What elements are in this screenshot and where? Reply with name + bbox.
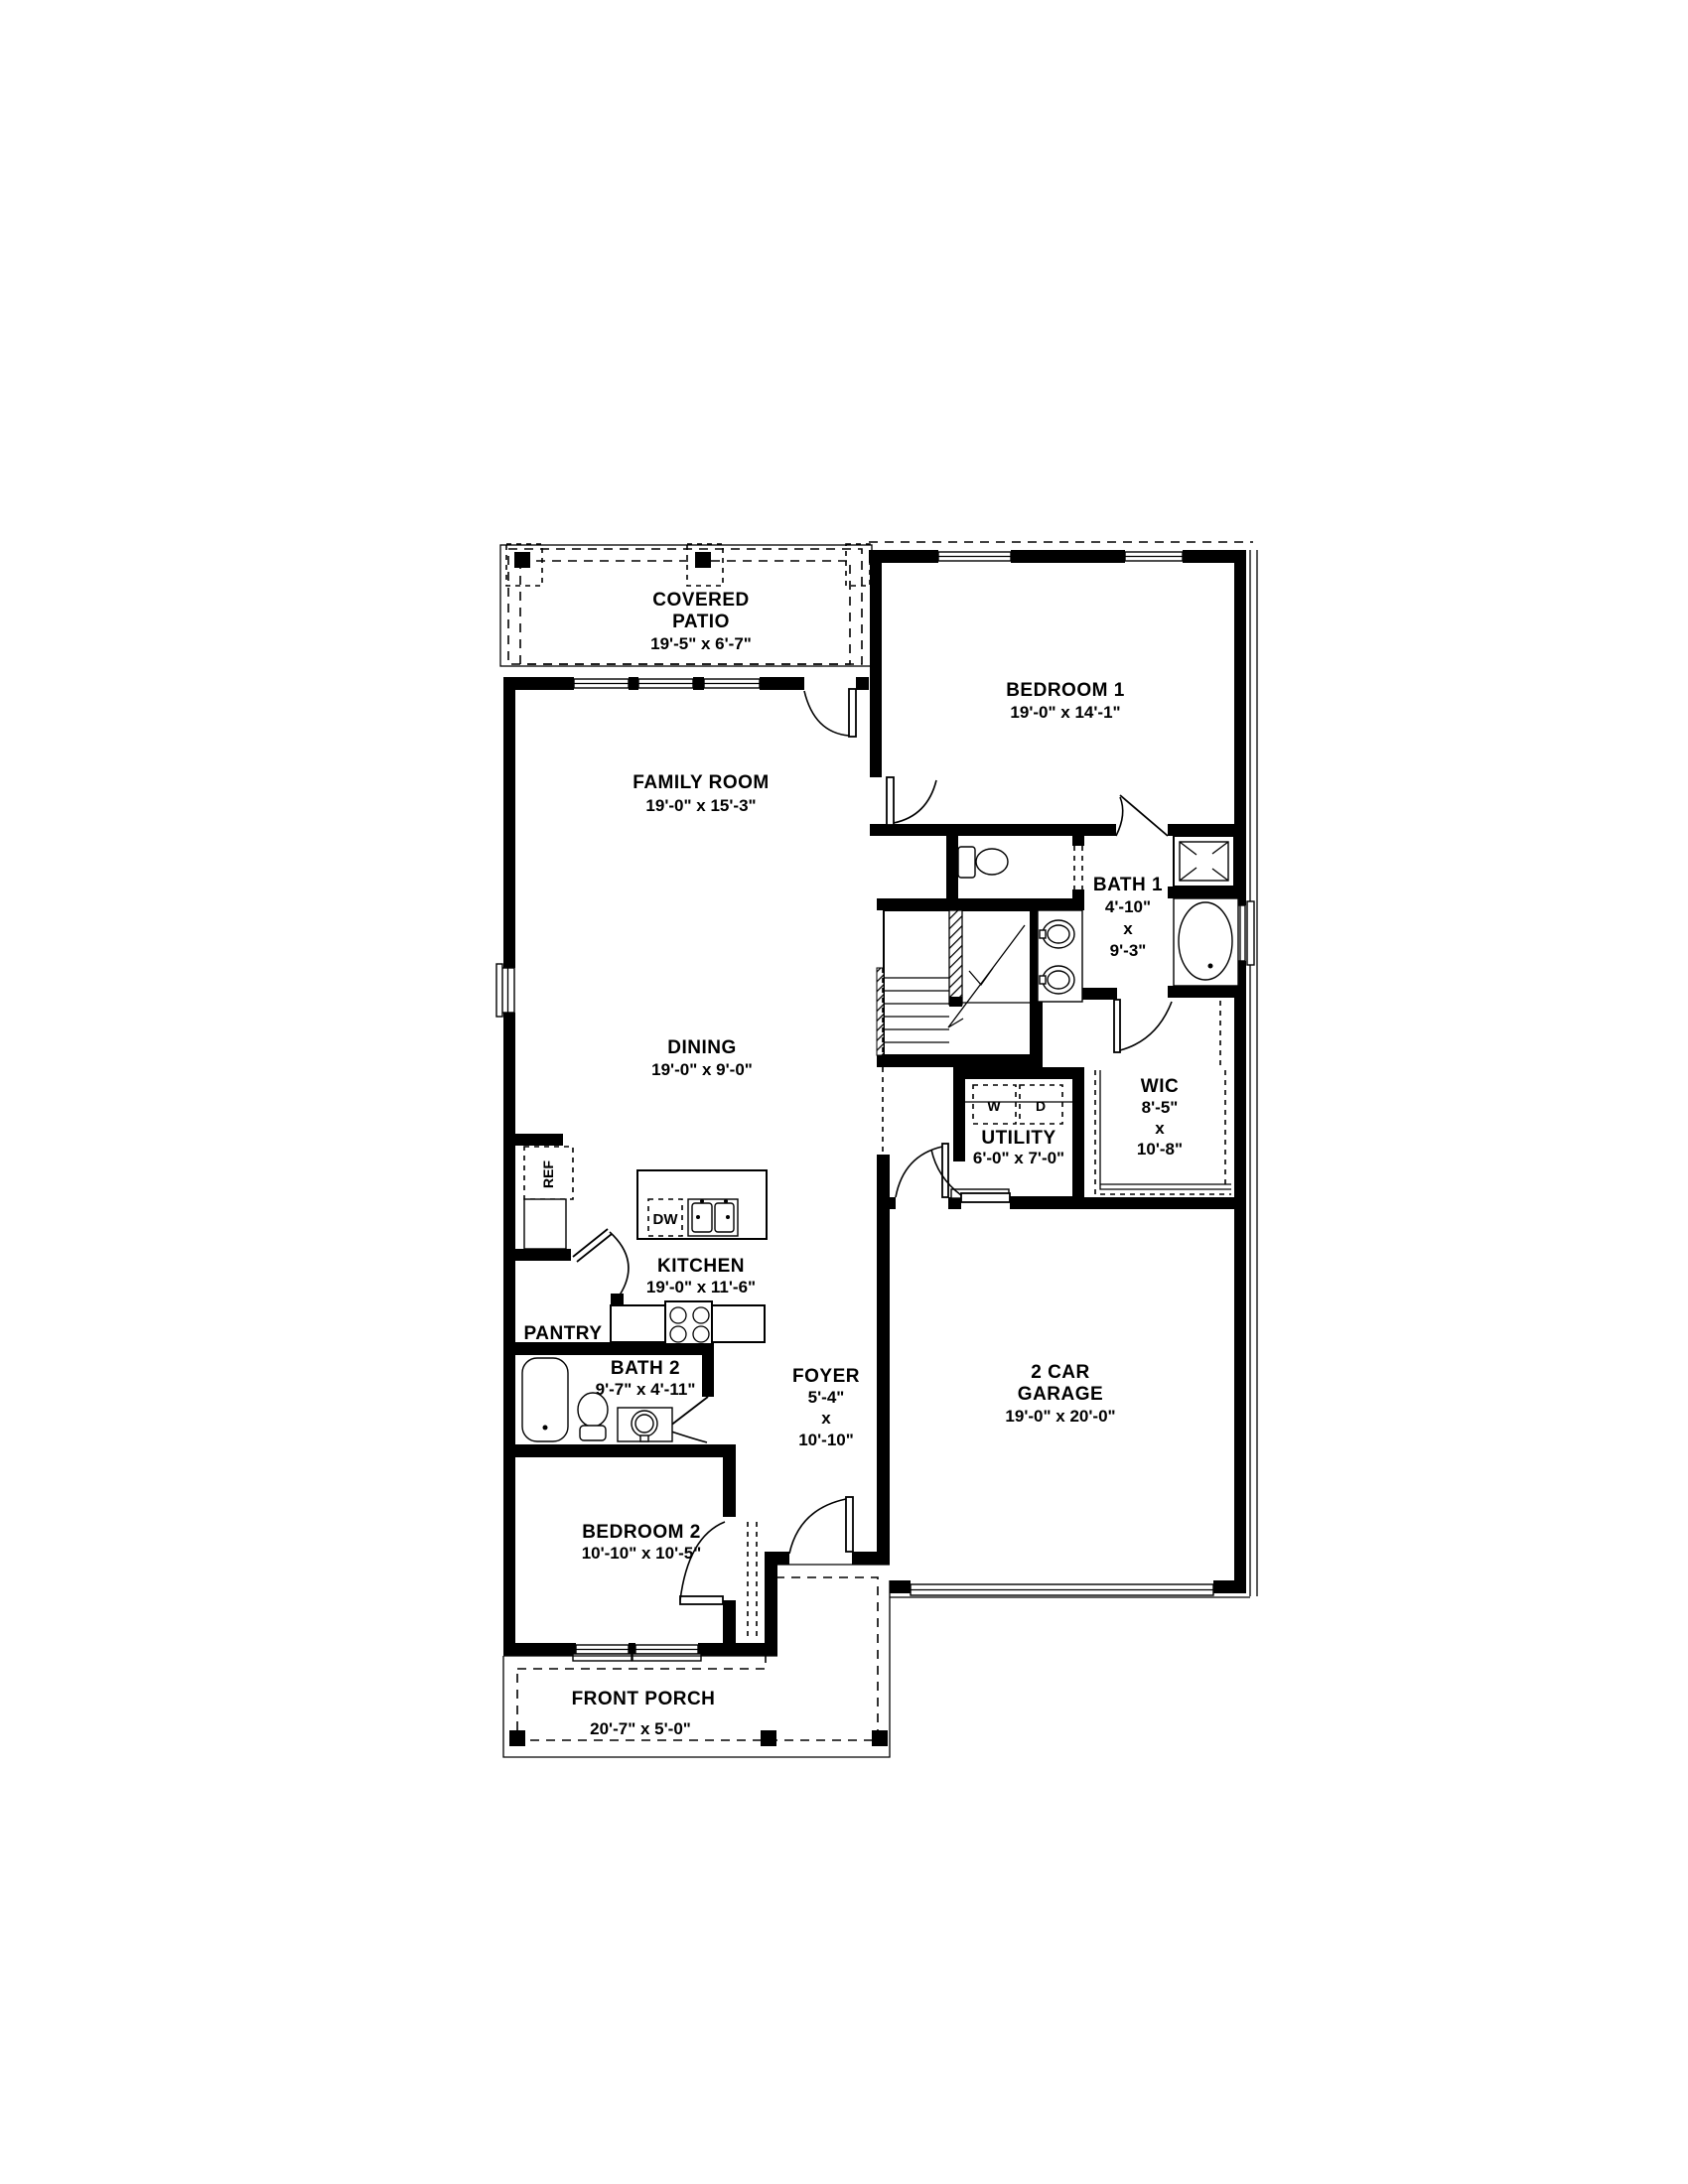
covered-patio-label: COVERED — [652, 590, 749, 611]
bath1-dims: 4'-10" — [1105, 897, 1151, 916]
bedroom1-window — [938, 552, 1011, 561]
dining-window — [496, 964, 514, 1017]
front-door — [789, 1497, 853, 1554]
wic-dims: 10'-8" — [1137, 1140, 1183, 1159]
double-vanity — [1038, 910, 1082, 1002]
porch-post — [872, 1730, 888, 1746]
front-porch-dims: 20'-7" x 5'-0" — [590, 1719, 691, 1738]
stove — [665, 1301, 712, 1344]
bath1-label: BATH 1 — [1093, 875, 1163, 895]
bath1-door — [1116, 795, 1168, 836]
family-room-label: FAMILY ROOM — [633, 772, 769, 793]
shower — [1174, 836, 1234, 887]
wic-dims: x — [1155, 1119, 1165, 1138]
kitchen-dims: 19'-0" x 11'-6" — [646, 1278, 756, 1297]
kitchen-label: KITCHEN — [657, 1256, 745, 1277]
dryer-label: D — [1036, 1098, 1046, 1114]
dining-label: DINING — [667, 1037, 737, 1058]
bath1-dims: x — [1123, 919, 1133, 938]
patio-post — [514, 552, 530, 568]
toilet — [578, 1393, 608, 1440]
family-room-window — [574, 679, 629, 688]
pantry-label: PANTRY — [524, 1323, 603, 1344]
bedroom1-dims: 19'-0" x 14'-1" — [1010, 703, 1120, 722]
bedroom1-door — [887, 777, 936, 825]
wic-door — [1114, 1000, 1172, 1052]
kitchen-fixtures — [524, 1147, 767, 1344]
bedroom2-window — [573, 1645, 632, 1661]
bedroom1-window — [1125, 552, 1183, 561]
dining-dims: 19'-0" x 9'-0" — [651, 1060, 753, 1079]
garage-dims: 19'-0" x 20'-0" — [1005, 1407, 1115, 1426]
pantry-door — [573, 1229, 629, 1299]
interior-walls — [503, 562, 1246, 1643]
bedroom2-label: BEDROOM 2 — [582, 1522, 701, 1543]
family-room-dims: 19'-0" x 15'-3" — [645, 796, 756, 815]
bedroom1-label: BEDROOM 1 — [1006, 680, 1125, 701]
garage-label: 2 CAR — [1031, 1362, 1090, 1383]
covered-patio-dims: 19'-5" x 6'-7" — [650, 634, 752, 653]
washer-label: W — [987, 1098, 1001, 1114]
bedroom2-dims: 10'-10" x 10'-5" — [582, 1544, 702, 1563]
front-porch-label: FRONT PORCH — [572, 1689, 716, 1709]
kitchen-counter-left — [524, 1199, 566, 1249]
refrigerator-label: REF — [540, 1160, 556, 1188]
foyer-dims: 10'-10" — [798, 1431, 854, 1449]
staircase — [877, 910, 1031, 1055]
bathtub — [522, 1358, 568, 1441]
bath1-fixtures — [958, 836, 1238, 1002]
garage-door — [911, 1584, 1213, 1595]
family-room-window — [704, 679, 760, 688]
foyer-dims: x — [821, 1409, 831, 1428]
kitchen-sink — [688, 1199, 738, 1236]
vanity-sink — [618, 1408, 672, 1441]
wic-dims: 8'-5" — [1142, 1098, 1179, 1117]
porch-post — [761, 1730, 776, 1746]
patio-door — [804, 689, 856, 737]
bath2-label: BATH 2 — [611, 1358, 680, 1379]
dishwasher-label: DW — [653, 1211, 679, 1228]
covered-patio-label: PATIO — [672, 612, 730, 632]
floor-plan-page: COVERED PATIO 19'-5" x 6'-7" FAMILY ROOM… — [0, 0, 1688, 2184]
floor-plan-drawing: COVERED PATIO 19'-5" x 6'-7" FAMILY ROOM… — [0, 0, 1688, 2184]
bathtub — [1174, 898, 1238, 986]
bath2-dims: 9'-7" x 4'-11" — [596, 1380, 696, 1399]
utility-label: UTILITY — [981, 1128, 1055, 1149]
family-room-window — [638, 679, 693, 688]
foyer-closet — [748, 1522, 757, 1638]
bedroom2-window — [633, 1645, 701, 1661]
utility-fixtures — [965, 1085, 1072, 1124]
utility-dims: 6'-0" x 7'-0" — [973, 1149, 1064, 1167]
wic-label: WIC — [1141, 1076, 1179, 1097]
toilet — [958, 847, 1008, 878]
patio-post — [695, 552, 711, 568]
foyer-label: FOYER — [792, 1366, 860, 1387]
garage-label: GARAGE — [1018, 1384, 1103, 1405]
porch-post — [509, 1730, 525, 1746]
bath1-dims: 9'-3" — [1110, 941, 1147, 960]
foyer-dims: 5'-4" — [808, 1388, 845, 1407]
